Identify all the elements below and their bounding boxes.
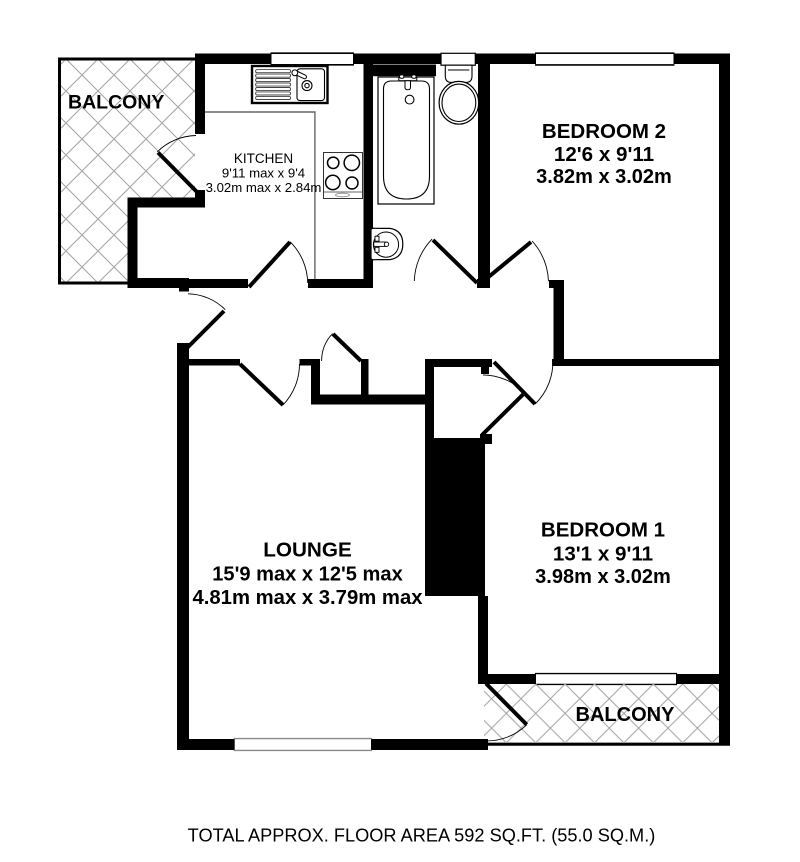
svg-text:3.02m max x 2.84m: 3.02m max x 2.84m (206, 180, 322, 195)
svg-text:9'11 max x 9'4: 9'11 max x 9'4 (222, 166, 305, 181)
svg-text:4.81m max x 3.79m max: 4.81m max x 3.79m max (192, 587, 423, 609)
svg-text:15'9 max x 12'5 max: 15'9 max x 12'5 max (212, 564, 403, 586)
svg-text:TOTAL APPROX. FLOOR AREA 592 S: TOTAL APPROX. FLOOR AREA 592 SQ.FT. (55.… (188, 826, 656, 846)
svg-text:BALCONY: BALCONY (576, 704, 676, 726)
svg-text:13'1 x 9'11: 13'1 x 9'11 (553, 543, 653, 566)
svg-text:12'6 x 9'11: 12'6 x 9'11 (554, 143, 654, 166)
svg-text:BEDROOM 2: BEDROOM 2 (542, 120, 666, 143)
svg-text:BEDROOM 1: BEDROOM 1 (541, 519, 665, 542)
svg-text:LOUNGE: LOUNGE (263, 539, 352, 562)
svg-text:BALCONY: BALCONY (68, 92, 164, 114)
svg-text:3.98m x 3.02m: 3.98m x 3.02m (535, 566, 671, 588)
svg-text:KITCHEN: KITCHEN (234, 151, 293, 166)
svg-text:3.82m x 3.02m: 3.82m x 3.02m (536, 166, 672, 188)
